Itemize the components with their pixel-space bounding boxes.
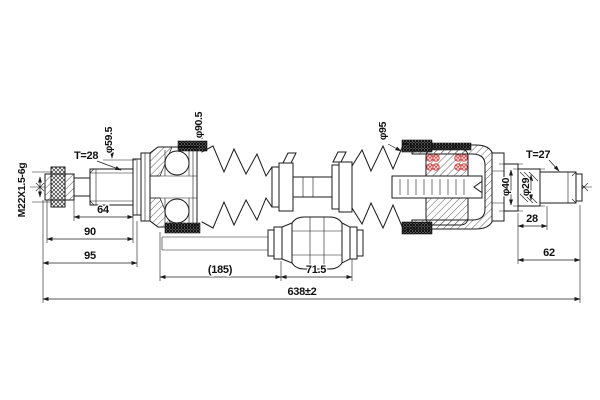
left-boot-bellows <box>202 146 272 228</box>
t28-label: T=28 <box>74 150 98 162</box>
dim-90-label: 90 <box>84 226 96 238</box>
inner-boot-clamp-bottom <box>402 222 432 234</box>
dim-28: 28 <box>518 213 547 226</box>
stub-neck <box>74 178 90 196</box>
dia-95-label: φ95 <box>377 121 389 140</box>
dim-90: 90 <box>47 226 133 239</box>
inner-joint-spline-shaft <box>392 176 482 198</box>
dim-64-label: 64 <box>97 204 110 216</box>
stub-thread <box>540 172 576 203</box>
callout-dia-59-5: φ59.5 <box>103 126 136 160</box>
left-threaded-stub <box>45 167 74 207</box>
stub-hex-nut <box>51 167 65 207</box>
dim-28-label: 28 <box>526 213 538 225</box>
bearing-ball-top <box>165 151 189 175</box>
dim-62: 62 <box>518 247 580 260</box>
dim-185-label: (185) <box>208 264 233 276</box>
dia-29-label: φ29 <box>520 177 532 196</box>
dia-40-label: φ40 <box>500 177 512 196</box>
outer-cv-joint <box>150 147 197 227</box>
t27-label: T=27 <box>526 149 550 161</box>
drawing-canvas: 64 90 95 (185) 71.5 638±2 28 62 M22X1.5-… <box>0 0 600 400</box>
inner-boot-clamp-top <box>402 140 432 152</box>
thread-spec-label: M22X1.5-6g <box>16 163 28 218</box>
axle-shaft <box>293 177 332 197</box>
callout-t27: T=27 <box>526 149 559 171</box>
bearing-ball-bottom <box>165 199 189 223</box>
dim-95: 95 <box>43 250 137 263</box>
outer-boot-big-clamp-bottom <box>165 223 200 233</box>
cv-axle-technical-drawing: 64 90 95 (185) 71.5 638±2 28 62 M22X1.5-… <box>0 0 600 400</box>
left-spline-section <box>90 169 133 205</box>
dim-185: (185) <box>160 264 281 277</box>
left-boot-small-clamp <box>272 153 296 211</box>
right-boot-small-clamp <box>332 152 352 212</box>
dia-59-5-label: φ59.5 <box>103 126 115 153</box>
callout-dia-90-5: φ90.5 <box>193 111 205 139</box>
dim-95-label: 95 <box>84 250 96 262</box>
dim-64: 64 <box>74 204 133 217</box>
callout-dia-95: φ95 <box>377 121 401 151</box>
outer-joint-face <box>133 153 150 221</box>
dim-71-5: 71.5 <box>281 264 352 277</box>
dim-638: 638±2 <box>43 286 580 299</box>
dia-90-5-label: φ90.5 <box>193 111 205 138</box>
dim-71-5-label: 71.5 <box>306 264 326 276</box>
inner-cv-joint <box>392 140 494 234</box>
dim-638-label: 638±2 <box>287 286 316 298</box>
dim-62-label: 62 <box>543 247 555 259</box>
outer-boot-big-clamp <box>178 141 207 151</box>
